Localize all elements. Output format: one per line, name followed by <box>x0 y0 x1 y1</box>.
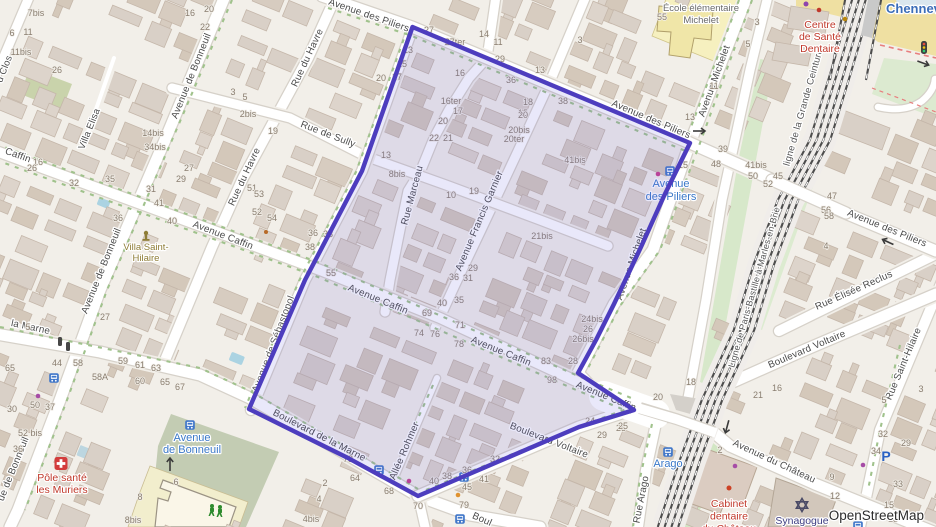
svg-text:11: 11 <box>23 27 32 37</box>
svg-text:63: 63 <box>151 363 161 373</box>
svg-text:11bis: 11bis <box>11 47 32 57</box>
svg-text:79: 79 <box>459 500 469 510</box>
svg-text:22: 22 <box>200 22 210 32</box>
svg-text:Villa Saint-: Villa Saint- <box>123 242 168 253</box>
svg-text:P: P <box>881 448 890 464</box>
svg-text:50: 50 <box>30 400 40 410</box>
svg-text:31: 31 <box>146 184 156 194</box>
svg-text:52 bis: 52 bis <box>18 428 43 438</box>
svg-text:de Santé: de Santé <box>799 31 841 43</box>
svg-text:20: 20 <box>204 4 214 14</box>
svg-text:4bis: 4bis <box>303 514 320 524</box>
svg-text:18: 18 <box>686 377 696 387</box>
svg-text:Cabinet: Cabinet <box>711 498 747 510</box>
svg-text:60: 60 <box>135 376 145 386</box>
svg-text:55: 55 <box>657 12 667 22</box>
svg-text:4: 4 <box>823 241 828 251</box>
svg-text:33: 33 <box>893 479 903 489</box>
svg-text:38: 38 <box>305 242 315 252</box>
svg-text:29: 29 <box>176 174 186 184</box>
svg-text:11: 11 <box>493 37 502 47</box>
svg-text:20: 20 <box>653 392 663 402</box>
svg-text:8: 8 <box>137 492 142 502</box>
svg-text:58: 58 <box>73 358 83 368</box>
svg-text:OpenStreetMap: OpenStreetMap <box>829 508 924 523</box>
svg-text:Synagogue: Synagogue <box>775 515 828 527</box>
svg-text:65: 65 <box>5 363 15 373</box>
svg-text:11: 11 <box>709 81 718 91</box>
svg-text:27: 27 <box>184 163 194 173</box>
svg-text:Michelet: Michelet <box>683 15 719 26</box>
svg-text:64: 64 <box>350 473 360 483</box>
svg-text:14bis: 14bis <box>142 128 164 138</box>
svg-text:5: 5 <box>881 395 886 405</box>
svg-text:45: 45 <box>773 171 783 181</box>
svg-text:65: 65 <box>160 377 170 387</box>
svg-text:50: 50 <box>748 171 758 181</box>
svg-text:13: 13 <box>535 65 545 75</box>
svg-text:29: 29 <box>901 438 911 448</box>
svg-text:20: 20 <box>376 73 386 83</box>
svg-text:47: 47 <box>827 191 837 201</box>
svg-text:58: 58 <box>824 211 834 221</box>
svg-text:32: 32 <box>69 178 79 188</box>
svg-text:Centre: Centre <box>804 19 836 31</box>
svg-text:68: 68 <box>384 486 394 496</box>
svg-text:5: 5 <box>25 322 30 332</box>
svg-text:19: 19 <box>268 126 278 136</box>
svg-text:4: 4 <box>316 494 321 504</box>
svg-text:41bis: 41bis <box>745 160 767 170</box>
svg-text:de Bonneuil: de Bonneuil <box>163 444 221 456</box>
svg-text:2: 2 <box>322 478 327 488</box>
svg-text:67: 67 <box>175 382 185 392</box>
svg-text:École élémentaire: École élémentaire <box>663 3 739 14</box>
svg-text:59: 59 <box>118 356 128 366</box>
svg-text:Hilaire: Hilaire <box>133 253 160 264</box>
svg-text:dentaire: dentaire <box>710 511 748 523</box>
svg-text:3: 3 <box>918 384 923 394</box>
svg-text:26: 26 <box>27 163 37 173</box>
svg-text:13: 13 <box>685 112 695 122</box>
svg-text:70: 70 <box>413 501 423 511</box>
svg-text:2bis: 2bis <box>240 109 257 119</box>
svg-text:3: 3 <box>577 35 582 45</box>
svg-text:26: 26 <box>52 65 62 75</box>
svg-text:44: 44 <box>52 358 62 368</box>
svg-text:21: 21 <box>753 390 763 400</box>
svg-text:Dentaire: Dentaire <box>800 43 840 55</box>
svg-text:36: 36 <box>13 444 23 454</box>
svg-text:7bis: 7bis <box>28 8 45 18</box>
svg-text:2: 2 <box>717 445 722 455</box>
svg-text:45: 45 <box>462 482 472 492</box>
svg-text:14: 14 <box>479 29 489 39</box>
svg-text:34bis: 34bis <box>144 142 166 152</box>
svg-text:29: 29 <box>597 430 607 440</box>
svg-text:41: 41 <box>479 474 489 484</box>
svg-text:53: 53 <box>254 189 264 199</box>
svg-text:34: 34 <box>871 446 881 456</box>
svg-text:6: 6 <box>173 477 178 487</box>
svg-text:35: 35 <box>105 174 115 184</box>
svg-text:54: 54 <box>267 213 277 223</box>
svg-text:48: 48 <box>711 159 721 169</box>
svg-text:25: 25 <box>618 421 628 431</box>
svg-text:8bis: 8bis <box>125 515 142 525</box>
svg-text:36: 36 <box>113 213 123 223</box>
svg-text:32: 32 <box>878 429 888 439</box>
svg-text:du Château: du Château <box>702 523 756 527</box>
svg-text:52: 52 <box>763 179 773 189</box>
svg-text:3: 3 <box>754 17 759 27</box>
svg-text:Pôle santé: Pôle santé <box>37 472 87 484</box>
svg-text:9: 9 <box>829 472 834 482</box>
svg-text:les Muriers: les Muriers <box>36 484 87 496</box>
svg-text:5: 5 <box>242 92 247 102</box>
svg-text:58A: 58A <box>92 372 108 382</box>
svg-text:30: 30 <box>7 404 17 414</box>
svg-text:41: 41 <box>154 198 164 208</box>
svg-text:40: 40 <box>167 216 177 226</box>
svg-text:27: 27 <box>100 312 110 322</box>
svg-text:Arago: Arago <box>653 458 682 470</box>
svg-text:3: 3 <box>230 87 235 97</box>
svg-text:36: 36 <box>308 228 318 238</box>
svg-text:Avenue: Avenue <box>173 432 210 444</box>
svg-text:52: 52 <box>252 207 262 217</box>
svg-text:16: 16 <box>185 8 195 18</box>
svg-text:16: 16 <box>772 383 782 393</box>
svg-text:6: 6 <box>9 28 14 38</box>
svg-text:61: 61 <box>135 360 145 370</box>
svg-text:37: 37 <box>45 402 55 412</box>
svg-text:5: 5 <box>745 39 750 49</box>
svg-text:Chennevières-sur-Marne: Chennevières-sur-Marne <box>886 1 936 16</box>
svg-text:39: 39 <box>718 144 728 154</box>
svg-text:12: 12 <box>830 491 840 501</box>
